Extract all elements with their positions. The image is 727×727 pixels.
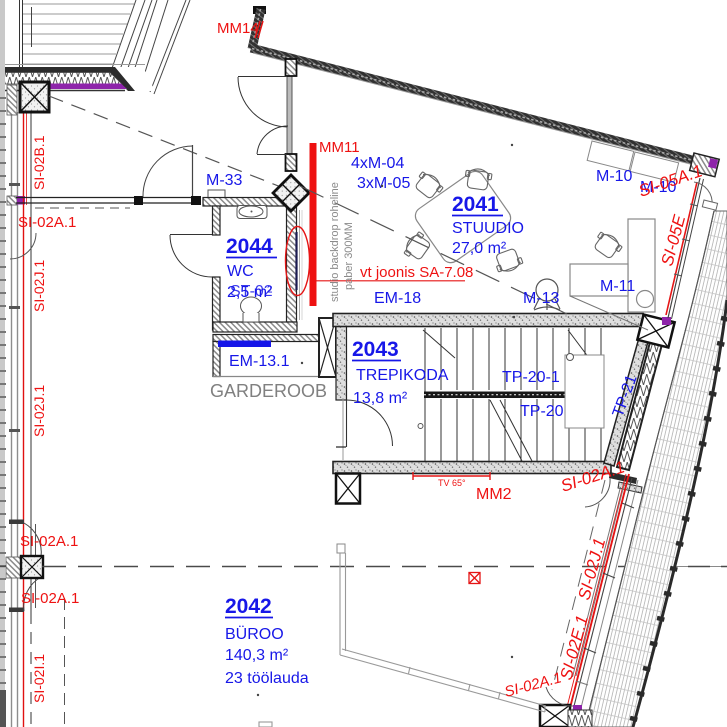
svg-text:BÜROO: BÜROO [225, 625, 284, 643]
svg-text:3xM-05: 3xM-05 [357, 175, 410, 192]
svg-text:studio backdrop roheline: studio backdrop roheline [329, 182, 341, 302]
svg-text:M-11: M-11 [600, 278, 635, 295]
svg-text:27,0 m²: 27,0 m² [452, 240, 507, 257]
svg-text:MM2: MM2 [476, 486, 512, 503]
svg-text:SI-02J.1: SI-02J.1 [31, 260, 47, 312]
svg-text:SI-02B.1: SI-02B.1 [31, 135, 47, 190]
svg-text:4xM-04: 4xM-04 [351, 155, 404, 172]
svg-text:2044: 2044 [226, 235, 273, 258]
svg-text:SI-02A.1: SI-02A.1 [20, 533, 78, 550]
svg-text:STUUDIO: STUUDIO [452, 220, 524, 237]
svg-text:2041: 2041 [452, 193, 499, 216]
svg-text:TV 65°: TV 65° [438, 478, 466, 488]
svg-text:SI-02J.1: SI-02J.1 [31, 385, 47, 437]
svg-text:TREPIKODA: TREPIKODA [356, 367, 449, 384]
svg-text:TP-20-1: TP-20-1 [502, 369, 560, 386]
svg-text:GARDEROOB: GARDEROOB [210, 381, 327, 401]
svg-text:2042: 2042 [225, 595, 272, 618]
svg-text:EM-18: EM-18 [374, 290, 421, 307]
svg-text:ST-02: ST-02 [230, 283, 273, 300]
svg-text:MM14: MM14 [217, 20, 259, 37]
svg-text:2043: 2043 [352, 338, 399, 361]
svg-text:M-13: M-13 [523, 290, 560, 307]
svg-text:WC: WC [227, 263, 254, 280]
svg-text:140,3 m²: 140,3 m² [225, 647, 289, 664]
svg-text:M-33: M-33 [206, 172, 243, 189]
svg-text:SI-02I.1: SI-02I.1 [31, 654, 47, 703]
svg-text:13,8 m²: 13,8 m² [353, 390, 408, 407]
svg-text:23 töölauda: 23 töölauda [225, 670, 309, 687]
svg-text:MM11: MM11 [319, 139, 360, 156]
svg-text:paber 300MM: paber 300MM [343, 222, 355, 290]
svg-text:vt joonis SA-7.08: vt joonis SA-7.08 [360, 264, 473, 281]
svg-text:SI-02A.1: SI-02A.1 [21, 590, 79, 607]
svg-text:M-10: M-10 [596, 168, 633, 185]
svg-text:SI-02A.1: SI-02A.1 [18, 214, 76, 231]
svg-text:EM-13.1: EM-13.1 [229, 353, 290, 370]
svg-text:TP-20: TP-20 [520, 403, 564, 420]
